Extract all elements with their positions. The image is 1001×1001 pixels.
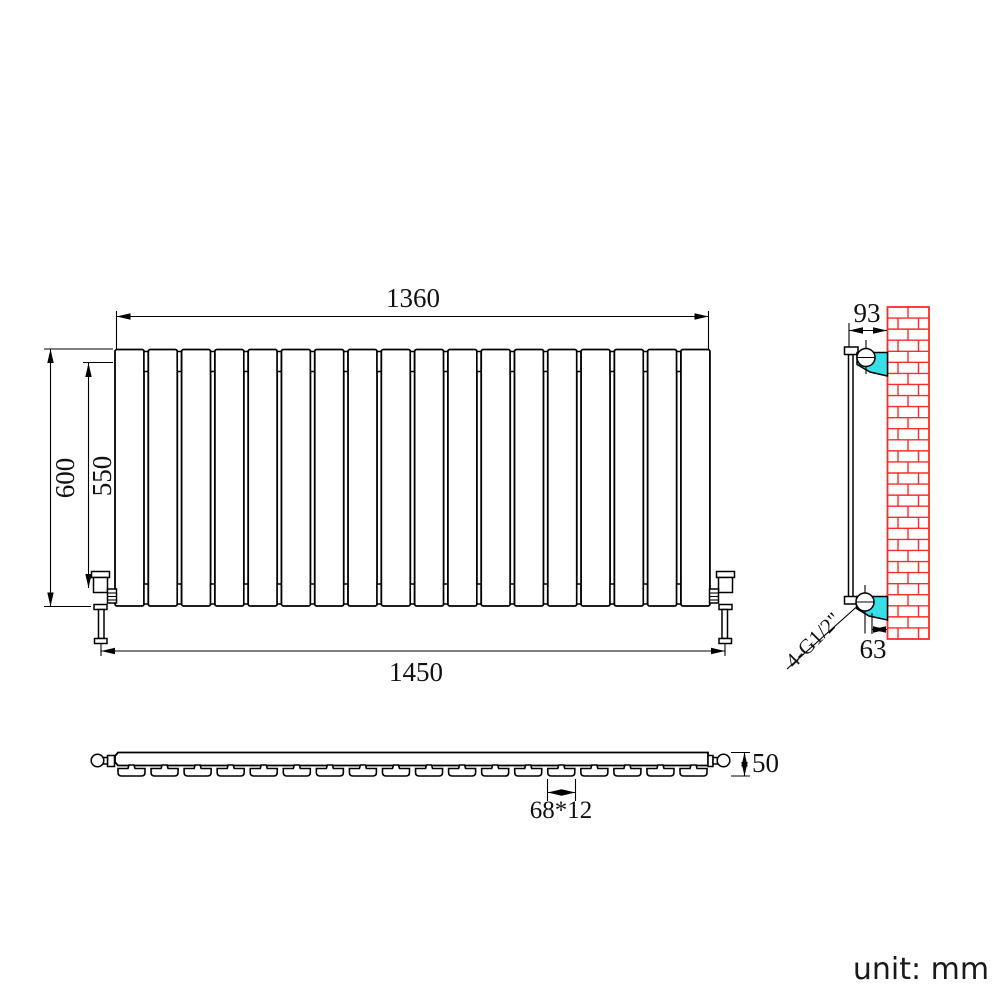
radiator-panel: [648, 350, 677, 607]
panel-tab: [482, 765, 509, 776]
dim-label-depth: 50: [752, 748, 779, 778]
radiator-panel: [315, 350, 344, 607]
bottom-header-bar: [115, 753, 708, 766]
panel-tab: [184, 765, 211, 776]
valve-body: [94, 578, 108, 593]
panel-tab: [581, 765, 608, 776]
dim-height-inner: 550: [83, 363, 117, 589]
panel-tab: [647, 765, 674, 776]
panel-tab: [614, 765, 641, 776]
side-profile: [845, 347, 859, 604]
dim-label-wall-offset-bottom: 63: [860, 634, 887, 664]
panel-tab: [283, 765, 310, 776]
connection-thread-label: 4-G1/2": [780, 607, 845, 672]
side-view: 93 63 4-G1/2": [780, 298, 929, 673]
radiator-panel: [581, 350, 610, 607]
panel-tab: [548, 765, 575, 776]
unit-note: unit: mm: [853, 952, 989, 987]
end-plug-icon: [717, 754, 730, 767]
panel-tab: [151, 765, 178, 776]
panel-tab: [217, 765, 244, 776]
dim-label-height-inner: 550: [87, 456, 117, 497]
bottom-left-connection: [91, 754, 114, 767]
radiator-panel: [148, 350, 177, 607]
radiator-panel: [248, 350, 277, 607]
brick-wall: [888, 307, 930, 639]
end-plug-icon: [91, 754, 104, 767]
panel-tab: [118, 765, 145, 776]
panel-tab: [382, 765, 409, 776]
dim-panel-section: 68*12: [530, 779, 593, 824]
panel-tab: [416, 765, 443, 776]
panel-tab: [515, 765, 542, 776]
dim-depth: 50: [731, 748, 779, 778]
bottom-right-connection: [708, 754, 730, 767]
radiator-panel: [115, 350, 144, 607]
panel-tab: [680, 765, 707, 776]
bottom-tabs: [118, 765, 707, 776]
valve-cap: [717, 572, 735, 578]
panel-tab: [449, 765, 476, 776]
valve-pipe: [722, 610, 728, 639]
radiator-panel: [182, 350, 211, 607]
radiator-panel: [548, 350, 577, 607]
connection-callout: 4-G1/2": [780, 607, 857, 673]
profile-bar: [849, 355, 854, 598]
front-panels: [115, 350, 710, 607]
dim-wall-offset-top: 93: [849, 298, 887, 347]
dim-width-bottom: 1450: [101, 651, 725, 687]
dim-label-panel-section: 68*12: [530, 797, 593, 824]
radiator-panel: [481, 350, 510, 607]
valve-body: [719, 578, 733, 593]
radiator-technical-drawing: 1360 600 550: [0, 0, 1001, 1001]
radiator-panel: [215, 350, 244, 607]
dim-width-top: 1360: [117, 283, 709, 349]
bottom-view: 50 68*12: [91, 748, 779, 824]
valve-pipe-flare: [95, 639, 108, 644]
radiator-panel: [415, 350, 444, 607]
valve-pipe-flare: [719, 639, 732, 644]
radiator-panel: [448, 350, 477, 607]
panel-tab: [316, 765, 343, 776]
dim-label-height-outer: 600: [50, 458, 80, 499]
radiator-panel: [281, 350, 310, 607]
panel-tab: [349, 765, 376, 776]
radiator-panel: [348, 350, 377, 607]
left-valve: [92, 572, 117, 657]
radiator-panel: [681, 350, 710, 607]
radiator-panel: [614, 350, 643, 607]
profile-top-cap: [845, 347, 859, 355]
front-view: 1360 600 550: [44, 283, 735, 687]
connector-block: [108, 756, 115, 767]
dim-label-width-top: 1360: [386, 283, 440, 313]
valve-pipe: [99, 610, 105, 639]
panel-tab: [250, 765, 277, 776]
radiator-panel: [381, 350, 410, 607]
dim-wall-offset-bottom: 63: [860, 613, 888, 664]
wall-bracket-top: [857, 340, 888, 376]
dim-label-wall-offset-top: 93: [854, 298, 881, 328]
right-valve: [710, 572, 735, 657]
radiator-panel: [514, 350, 543, 607]
dim-label-width-bottom: 1450: [389, 657, 443, 687]
valve-cap: [92, 572, 110, 578]
